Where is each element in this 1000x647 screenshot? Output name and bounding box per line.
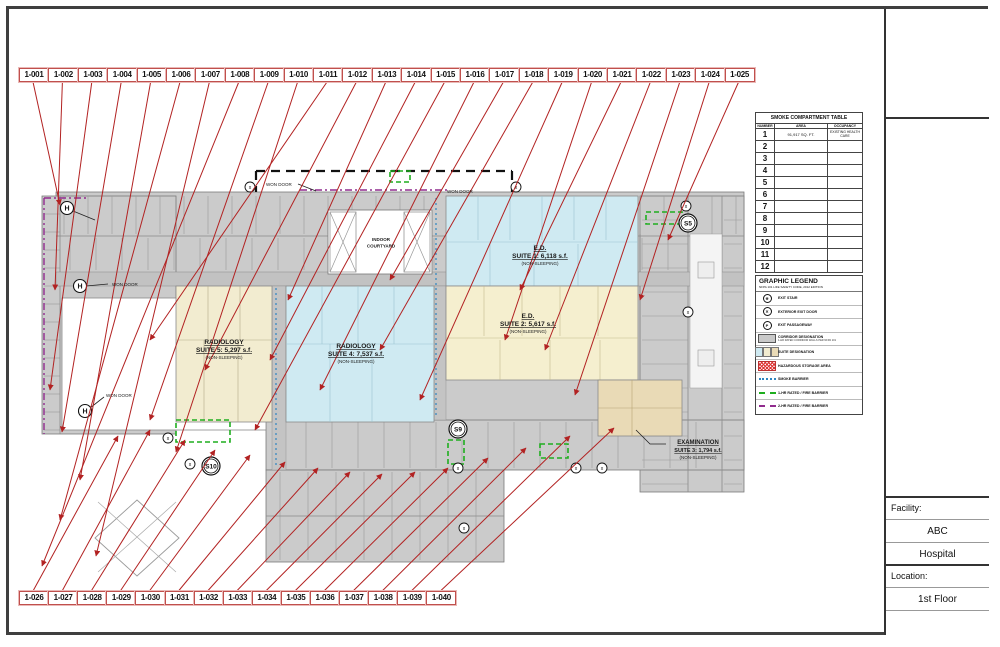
legend-item-note: 1-HR RATED CORRIDOR WALLS PER NFPA 101	[778, 339, 862, 342]
callout-tag[interactable]: 1-005	[137, 68, 167, 82]
legend-item-text: EXTERIOR EXIT DOOR	[778, 310, 862, 314]
callout-tag[interactable]: 1-013	[372, 68, 402, 82]
table-row: 5	[756, 177, 862, 189]
legend-item-label: HAZARDOUS STORAGE AREA	[778, 364, 862, 368]
callout-tag[interactable]: 1-014	[401, 68, 431, 82]
callout-tag[interactable]: 1-002	[48, 68, 78, 82]
cell-occupancy	[828, 141, 862, 152]
cell-number: 10	[756, 237, 775, 248]
won-door-label: WON DOOR	[112, 282, 138, 287]
suite-swatch	[756, 347, 778, 357]
h-marker-label: H	[82, 409, 87, 416]
cell-area	[775, 225, 828, 236]
fire-barrier-2hr-line	[756, 405, 778, 407]
callout-tag[interactable]: 1-001	[19, 68, 49, 82]
callout-tag[interactable]: 1-030	[135, 591, 165, 605]
legend-row: 2-HR RATED / FIRE BARRIER	[756, 400, 862, 413]
cell-area	[775, 261, 828, 272]
table-row: 9	[756, 225, 862, 237]
cell-occupancy	[828, 165, 862, 176]
legend-item-text: EXIT STAIR	[778, 296, 862, 300]
callout-tag[interactable]: 1-035	[281, 591, 311, 605]
exterior-exit-door-icon: ✕	[756, 307, 778, 316]
legend-item-text: CORRIDOR DESIGNATION1-HR RATED CORRIDOR …	[778, 335, 862, 342]
cell-number: 12	[756, 261, 775, 272]
leader-line	[33, 82, 60, 205]
callout-tag[interactable]: 1-031	[165, 591, 195, 605]
callout-tag[interactable]: 1-034	[252, 591, 282, 605]
legend-row: ✕EXTERIOR EXIT DOOR	[756, 306, 862, 320]
callout-tag[interactable]: 1-037	[339, 591, 369, 605]
cell-occupancy	[828, 261, 862, 272]
callout-tag[interactable]: 1-006	[166, 68, 196, 82]
cell-area	[775, 165, 828, 176]
legend-item-label: EXTERIOR EXIT DOOR	[778, 310, 862, 314]
callout-tag[interactable]: 1-032	[194, 591, 224, 605]
cell-occupancy: EXISTING HEALTH CARE	[828, 129, 862, 140]
callout-tag[interactable]: 1-024	[695, 68, 725, 82]
title-block-empty-box	[886, 9, 989, 119]
cell-area	[775, 177, 828, 188]
table-row: 3	[756, 153, 862, 165]
callout-tag[interactable]: 1-023	[666, 68, 696, 82]
suite1-label: E.D.	[534, 245, 547, 252]
suite4-label: SUITE 4: 7,537 s.f.	[328, 351, 384, 358]
callout-tag[interactable]: 1-015	[431, 68, 461, 82]
location-value: 1st Floor	[886, 588, 989, 611]
suite2-label: E.D.	[522, 313, 535, 320]
column-header: OCCUPANCY	[828, 124, 862, 128]
suite1-label: (NON-SLEEPING)	[521, 261, 559, 266]
callout-tag[interactable]: 1-033	[223, 591, 253, 605]
callout-tag[interactable]: 1-040	[426, 591, 456, 605]
cell-area: 91,917 SQ. FT.	[775, 129, 828, 140]
suite3-label: EXAMINATION	[677, 440, 719, 446]
callout-tag[interactable]: 1-022	[636, 68, 666, 82]
table-row: 191,917 SQ. FT.EXISTING HEALTH CARE	[756, 129, 862, 141]
table-row: 12	[756, 261, 862, 272]
corridor-swatch	[758, 334, 776, 343]
callout-tag[interactable]: 1-029	[106, 591, 136, 605]
cell-number: 3	[756, 153, 775, 164]
suite5-label: (NON-SLEEPING)	[205, 355, 243, 360]
table-row: 4	[756, 165, 862, 177]
cell-number: 11	[756, 249, 775, 260]
cell-area	[775, 249, 828, 260]
legend-item-label: 2-HR RATED / FIRE BARRIER	[778, 404, 862, 408]
suite5-label: RADIOLOGY	[204, 339, 244, 346]
legend-title: GRAPHIC LEGEND	[756, 276, 862, 285]
legend-row: HAZARDOUS STORAGE AREA	[756, 360, 862, 374]
won-door-label: WON DOOR	[266, 182, 292, 187]
cell-number: 6	[756, 189, 775, 200]
cell-occupancy	[828, 213, 862, 224]
callout-tag[interactable]: 1-011	[313, 68, 343, 82]
facility-label: Facility:	[886, 498, 989, 520]
callout-tag[interactable]: 1-003	[78, 68, 108, 82]
fire-barrier-1hr-line	[759, 392, 776, 394]
cell-number: 9	[756, 225, 775, 236]
suite1-label: SUITE 1: 6,118 s.f.	[512, 253, 568, 260]
callout-tag[interactable]: 1-028	[77, 591, 107, 605]
cell-number: 8	[756, 213, 775, 224]
legend-item-text: EXIT PASSAGEWAY	[778, 323, 862, 327]
callout-tag[interactable]: 1-026	[19, 591, 49, 605]
cell-occupancy	[828, 237, 862, 248]
smoke-compartment-table: SMOKE COMPARTMENT TABLE NUMBER AREA OCCU…	[755, 112, 863, 273]
suite3-label: (NON-SLEEPING)	[679, 455, 717, 460]
table-row: 8	[756, 213, 862, 225]
smoke-compartment-marker-label: S10	[205, 464, 217, 471]
suite-swatch	[755, 347, 779, 357]
fire-barrier-2hr-line	[759, 405, 776, 407]
legend-item-text: SMOKE BARRIER	[778, 377, 862, 381]
cell-number: 1	[756, 129, 775, 140]
fixture	[698, 350, 714, 366]
legend-row: 1-HR RATED / FIRE BARRIER	[756, 387, 862, 401]
callout-tag[interactable]: 1-009	[254, 68, 284, 82]
cell-area	[775, 153, 828, 164]
cell-occupancy	[828, 201, 862, 212]
fixture	[698, 262, 714, 278]
legend-item-text: HAZARDOUS STORAGE AREA	[778, 364, 862, 368]
callout-tag[interactable]: 1-039	[397, 591, 427, 605]
smoke-table-title: SMOKE COMPARTMENT TABLE	[756, 113, 862, 124]
suite2-label: (NON-SLEEPING)	[509, 329, 547, 334]
legend-row: SMOKE BARRIER	[756, 373, 862, 387]
legend-item-label: SUITE DESIGNATION	[778, 350, 862, 354]
hazardous-swatch	[756, 361, 778, 371]
suite-color-chip	[755, 347, 763, 357]
legend-item-text: SUITE DESIGNATION	[778, 350, 862, 354]
legend-row: SUITE DESIGNATION	[756, 346, 862, 360]
legend-item-label: EXIT PASSAGEWAY	[778, 323, 862, 327]
suite-3-examination-zone	[598, 380, 682, 436]
smoke-barrier-line	[759, 378, 776, 380]
legend-item-label: EXIT STAIR	[778, 296, 862, 300]
column-header: AREA	[775, 124, 828, 128]
cell-occupancy	[828, 189, 862, 200]
callout-tag[interactable]: 1-036	[310, 591, 340, 605]
cell-area	[775, 213, 828, 224]
callout-tag[interactable]: 1-021	[607, 68, 637, 82]
cell-occupancy	[828, 249, 862, 260]
exit-passageway-icon: P	[756, 321, 778, 330]
fire-barrier-1hr-line	[756, 392, 778, 394]
title-block: Facility: ABC Hospital Location: 1st Flo…	[884, 9, 989, 635]
suite4-label: (NON-SLEEPING)	[337, 359, 375, 364]
drawing-sheet: xxxxxxxxxxS5S9S10HHH INDOOR COURTYARD WO…	[0, 0, 1000, 647]
courtyard-label: COURTYARD	[367, 244, 396, 249]
corridor-swatch	[756, 334, 778, 343]
table-row: 6	[756, 189, 862, 201]
h-marker-label: H	[64, 206, 69, 213]
callout-tag[interactable]: 1-038	[368, 591, 398, 605]
callout-tag[interactable]: 1-004	[107, 68, 137, 82]
hazardous-swatch	[758, 361, 776, 371]
table-row: 10	[756, 237, 862, 249]
callout-tag[interactable]: 1-019	[548, 68, 578, 82]
legend-item-text: 1-HR RATED / FIRE BARRIER	[778, 391, 862, 395]
smoke-barrier-line	[756, 378, 778, 380]
callout-tag[interactable]: 1-025	[725, 68, 755, 82]
legend-item-label: SMOKE BARRIER	[778, 377, 862, 381]
callout-tag[interactable]: 1-020	[578, 68, 608, 82]
cell-occupancy	[828, 153, 862, 164]
cell-occupancy	[828, 225, 862, 236]
callout-tag[interactable]: 1-017	[489, 68, 519, 82]
location-label: Location:	[886, 566, 989, 588]
exit-stair-icon: ✳	[756, 294, 778, 303]
suite4-label: RADIOLOGY	[336, 343, 376, 350]
legend-row: CORRIDOR DESIGNATION1-HR RATED CORRIDOR …	[756, 333, 862, 347]
legend-item-label: 1-HR RATED / FIRE BARRIER	[778, 391, 862, 395]
won-door-label: WON DOOR	[447, 189, 473, 194]
courtyard-label: INDOOR	[372, 237, 391, 242]
column-header: NUMBER	[756, 124, 775, 128]
callout-tag[interactable]: 1-007	[195, 68, 225, 82]
table-row: 11	[756, 249, 862, 261]
cell-occupancy	[828, 177, 862, 188]
suite3-label: SUITE 3: 1,794 s.f.	[674, 448, 722, 454]
graphic-legend: GRAPHIC LEGEND NFPA 101 LIFE SAFETY CODE…	[755, 275, 863, 415]
table-row: 7	[756, 201, 862, 213]
exit-passageway-icon: P	[763, 321, 772, 330]
legend-row: ✳EXIT STAIR	[756, 292, 862, 306]
suite2-label: SUITE 2: 5,617 s.f.	[500, 321, 556, 328]
h-marker-label: H	[77, 284, 82, 291]
exterior-exit-door-icon: ✕	[763, 307, 772, 316]
callout-tag[interactable]: 1-008	[225, 68, 255, 82]
exit-stair-icon: ✳	[763, 294, 772, 303]
callout-tag[interactable]: 1-010	[284, 68, 314, 82]
cell-number: 2	[756, 141, 775, 152]
suite5-label: SUITE 5: 5,297 s.f.	[196, 347, 252, 354]
won-door-label: WON DOOR	[106, 393, 132, 398]
title-block-empty-box	[886, 119, 989, 498]
cell-area	[775, 141, 828, 152]
table-strip: SMOKE COMPARTMENT TABLE NUMBER AREA OCCU…	[755, 112, 863, 415]
cell-number: 4	[756, 165, 775, 176]
cell-number: 5	[756, 177, 775, 188]
callout-tag[interactable]: 1-012	[342, 68, 372, 82]
suite-color-chip	[763, 347, 771, 357]
legend-item-text: 2-HR RATED / FIRE BARRIER	[778, 404, 862, 408]
suite-1-ed-zone	[446, 196, 638, 286]
callout-tag[interactable]: 1-027	[48, 591, 78, 605]
callout-tag[interactable]: 1-018	[519, 68, 549, 82]
cell-area	[775, 189, 828, 200]
callout-tag[interactable]: 1-016	[460, 68, 490, 82]
table-row: 2	[756, 141, 862, 153]
cell-area	[775, 237, 828, 248]
facility-name-line1: ABC	[886, 520, 989, 543]
smoke-compartment-marker-label: S9	[454, 427, 462, 434]
construction-dashed-line	[256, 171, 512, 192]
legend-subtitle: NFPA 101 LIFE SAFETY CODE, 2012 EDITION	[756, 285, 862, 292]
title-block-empty-box	[886, 611, 989, 635]
facility-name-line2: Hospital	[886, 543, 989, 566]
smoke-compartment-marker-label: S5	[684, 221, 692, 228]
legend-row: PEXIT PASSAGEWAY	[756, 319, 862, 333]
cell-number: 7	[756, 201, 775, 212]
cell-area	[775, 201, 828, 212]
